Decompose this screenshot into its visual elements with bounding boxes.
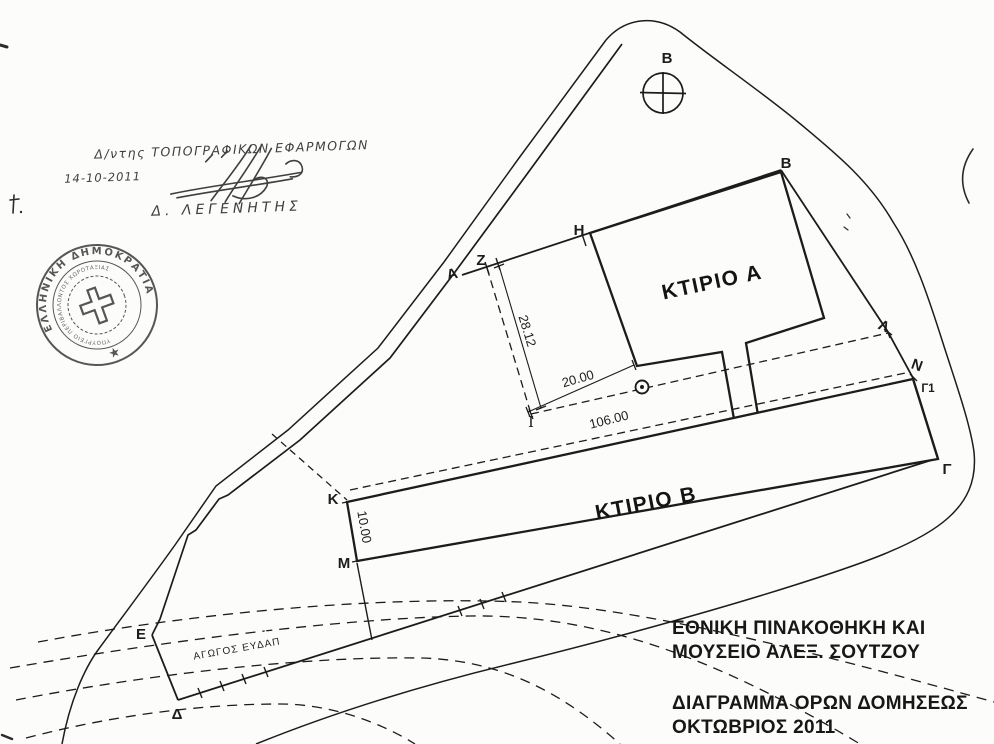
handwritten-date: 14-10-2011 [64,169,141,186]
coat-of-arms-cross-icon [76,284,118,328]
pipeline-label: ΑΓΩΓΟΣ ΕΥΔΑΠ [193,636,282,662]
building-a: ΚΤΙΡΙΟ Α [590,172,824,419]
title-line-3: ΔΙΑΓΡΑΜΜΑ ΟΡΩΝ ΔΟΜΗΣΕΩΣ [672,693,968,714]
boundary-m-extension [357,563,372,640]
left-margin-mark [10,195,19,213]
dim-label-20-00: 20.00 [560,367,595,390]
title-line-4: ΟΚΤΩΒΡΙΟΣ 2011 [672,717,836,738]
title-line-1: ΕΘΝΙΚΗ ΠΙΝΑΚΟΘΗΚΗ ΚΑΙ [672,618,926,639]
point-label-eta: Η [574,222,585,239]
handwritten-note: Δ/ντης ΤΟΠΟΓΡΑΦΙΚΩΝ ΕΦΑΡΜΟΓΩΝ 14-10-2011… [63,137,371,223]
dim-label-28-12: 28.12 [516,313,540,349]
survey-point-theta [636,381,649,394]
boundary-edge-delta-epsilon [152,635,178,700]
point-label-gamma1: Γ1 [921,383,935,395]
scanned-site-plan: ΑΓΩΓΟΣ ΕΥΔΑΠ ΚΤΙΡΙΟ Α ΚΤΙΡΙΟ Β [0,0,994,744]
pipeline-arc [26,704,415,744]
title-line-2: ΜΟΥΣΕΙΟ ΑΛΕΞ. ΣΟΥΤΖΟΥ [672,642,920,663]
handwritten-title: Δ/ντης ΤΟΠΟΓΡΑΦΙΚΩΝ ΕΦΑΡΜΟΓΩΝ [93,137,369,162]
corner-speck-top [0,45,7,47]
point-label-epsilon: Ε [136,626,146,643]
point-label-kappa: Κ [328,491,339,508]
point-label-mu: Μ [338,555,351,572]
dim-label-106-00: 106.00 [588,407,630,431]
small-speck [844,214,850,230]
pipeline-arc [16,658,620,744]
building-b: ΚΤΙΡΙΟ Β [347,379,938,561]
title-block: ΕΘΝΙΚΗ ΠΙΝΑΚΟΘΗΚΗ ΚΑΙ ΜΟΥΣΕΙΟ ΑΛΕΞ. ΣΟΥΤ… [672,618,968,738]
building-a-outline [590,172,824,419]
left-margin-dot [20,211,22,213]
point-label-zeta: Ζ [476,252,485,269]
point-label-beta: Β [781,155,792,172]
north-label: Β [662,50,673,67]
point-label-gamma: Γ [942,461,951,478]
right-margin-mark [963,149,973,203]
point-label-iota: Ι [528,413,534,431]
official-stamp: ΕΛΛΗΝΙΚΗ ΔΗΜΟΚΡΑΤΙΑ ΥΠΟΥΡΓΕΙΟ ΠΕΡΙΒΑΛΛΟΝ… [20,228,174,382]
point-label-delta: Δ [172,706,183,723]
point-label-nu: Ν [909,356,925,376]
corner-speck-bottom [2,735,12,739]
building-b-outline [347,379,938,561]
north-indicator: Β [640,50,686,114]
